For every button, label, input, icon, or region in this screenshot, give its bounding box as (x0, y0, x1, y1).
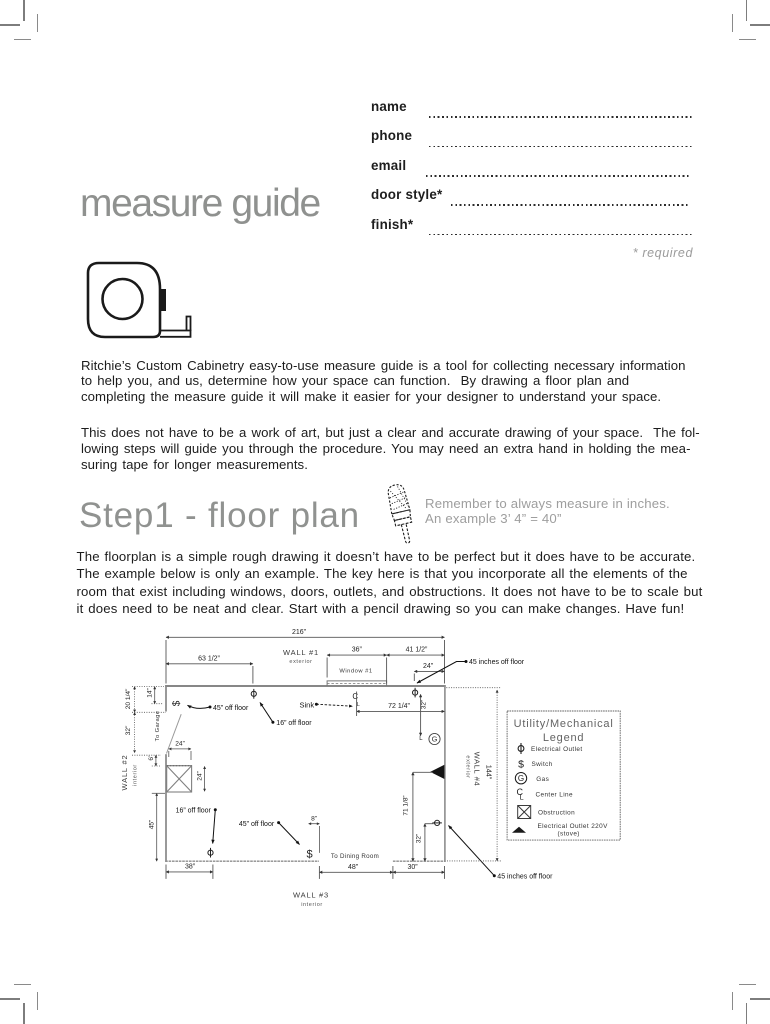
svg-text:WALL #3: WALL #3 (293, 891, 329, 900)
svg-text:38”: 38” (185, 864, 196, 871)
svg-text:$: $ (306, 849, 312, 861)
svg-text:Window #1: Window #1 (339, 669, 372, 675)
svg-text:Sink: Sink (300, 700, 315, 709)
svg-text:36”: 36” (352, 647, 363, 654)
svg-text:41 1/2”: 41 1/2” (406, 647, 428, 654)
svg-text:20 1/4”: 20 1/4” (125, 689, 132, 710)
svg-text:45” off floor: 45” off floor (239, 821, 275, 828)
svg-text:interior: interior (133, 764, 139, 786)
svg-text:To Dining Room: To Dining Room (331, 853, 379, 860)
svg-text:Obstruction: Obstruction (538, 810, 575, 817)
svg-text:Switch: Switch (532, 761, 553, 768)
svg-text:Center Line: Center Line (536, 791, 573, 798)
svg-text:exterior: exterior (289, 659, 312, 665)
svg-text:48”: 48” (348, 864, 359, 871)
svg-text:Utility/Mechanical: Utility/Mechanical (514, 718, 614, 730)
svg-text:72 1/4”: 72 1/4” (388, 703, 410, 710)
svg-text:G: G (432, 735, 438, 744)
svg-text:WALL #4: WALL #4 (472, 752, 481, 787)
svg-text:8”: 8” (311, 816, 317, 823)
svg-text:45 inches off floor: 45 inches off floor (469, 659, 525, 666)
svg-text:32”: 32” (125, 726, 132, 736)
svg-text:L: L (357, 702, 360, 708)
svg-text:6’: 6’ (148, 755, 155, 761)
svg-text:216”: 216” (292, 629, 307, 636)
svg-text:32”: 32” (415, 834, 422, 843)
svg-text:45 inches off floor: 45 inches off floor (497, 873, 553, 880)
svg-text:L: L (419, 736, 423, 742)
svg-text:WALL #2: WALL #2 (120, 755, 129, 791)
svg-text:16” off floor: 16” off floor (176, 808, 212, 815)
svg-text:24”: 24” (175, 741, 185, 748)
svg-text:Legend: Legend (543, 732, 585, 744)
svg-text:C: C (352, 692, 358, 701)
svg-text:45”: 45” (149, 820, 156, 830)
svg-text:Gas: Gas (536, 776, 549, 783)
svg-text:63 1/2”: 63 1/2” (198, 655, 220, 662)
svg-text:144”: 144” (484, 765, 493, 780)
svg-text:WALL #1: WALL #1 (283, 648, 319, 657)
svg-text:exterior: exterior (465, 755, 471, 778)
svg-text:(stove): (stove) (558, 831, 580, 838)
svg-text:30”: 30” (407, 864, 418, 871)
svg-text:24”: 24” (423, 663, 434, 670)
svg-text:71 1/8”: 71 1/8” (403, 795, 410, 815)
svg-text:L: L (520, 793, 524, 802)
svg-text:interior: interior (301, 902, 323, 908)
svg-text:$: $ (518, 758, 524, 770)
svg-text:32”: 32” (421, 700, 428, 709)
svg-text:$: $ (171, 700, 182, 706)
svg-text:To Garage: To Garage (155, 711, 161, 742)
svg-text:G: G (518, 774, 524, 783)
svg-text:16” off floor: 16” off floor (276, 720, 312, 727)
svg-text:14”: 14” (147, 688, 154, 698)
svg-text:24”: 24” (197, 771, 204, 781)
svg-text:Electrical Outlet: Electrical Outlet (531, 746, 583, 753)
svg-text:45” off floor: 45” off floor (213, 705, 249, 712)
svg-text:Electrical Outlet 220V: Electrical Outlet 220V (538, 823, 609, 830)
